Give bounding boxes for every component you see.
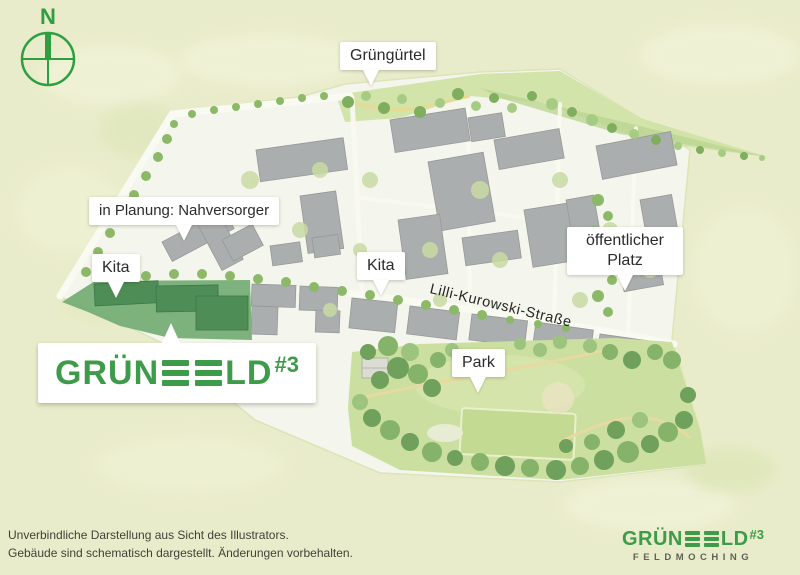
callout-oeffentlicher-platz: öffentlicher Platz (567, 227, 683, 275)
callout-nahversorger: in Planung: Nahversorger (89, 197, 279, 225)
stylized-e-glyph-icon (195, 360, 222, 386)
compass-north-label: N (10, 6, 86, 28)
footer-logo-text-ld: LD (721, 529, 749, 549)
gruenfeld-logo: GRÜN LD #3 (55, 356, 299, 390)
logo-text-ld: LD (225, 356, 272, 390)
callout-gruenguertel: Grüngürtel (340, 42, 436, 70)
disclaimer: Unverbindliche Darstellung aus Sicht des… (8, 526, 353, 562)
footer-stylized-f-glyph-icon (685, 531, 700, 547)
gruenfeld-logo-plate: GRÜN LD #3 (38, 343, 316, 403)
footer-brand: GRÜN LD #3 FELDMOCHING (608, 529, 778, 563)
compass: N (14, 6, 86, 95)
logo-text-gruen: GRÜN (55, 356, 159, 390)
disclaimer-line-2: Gebäude sind schematisch dargestellt. Än… (8, 544, 353, 562)
footer-logo-text-gruen: GRÜN (622, 529, 683, 549)
site-plan-illustration: N Grüngürtel in Planung: Nahversorger Ki… (0, 0, 800, 575)
footer-gruenfeld-logo: GRÜN LD #3 (608, 529, 778, 549)
stylized-f-glyph-icon (162, 360, 189, 386)
footer-stylized-e-glyph-icon (704, 531, 719, 547)
disclaimer-line-1: Unverbindliche Darstellung aus Sicht des… (8, 526, 353, 544)
footer-logo-suffix: #3 (750, 528, 764, 541)
footer-logo-subtitle: FELDMOCHING (608, 552, 778, 563)
logo-suffix: #3 (274, 354, 298, 376)
callout-kita-west: Kita (92, 254, 140, 282)
callout-park: Park (452, 349, 505, 377)
compass-rose-icon (18, 28, 82, 90)
callout-kita-mitte: Kita (357, 252, 405, 280)
